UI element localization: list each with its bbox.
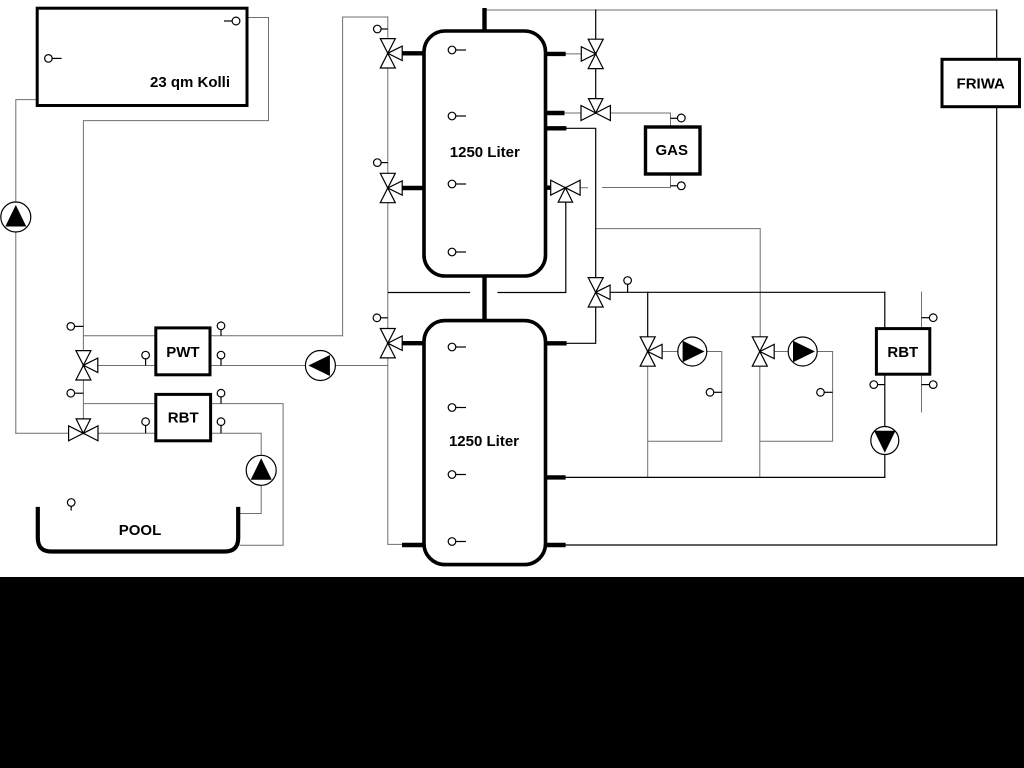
svg-text:RBT: RBT (887, 344, 918, 361)
svg-text:GAS: GAS (655, 142, 688, 159)
svg-text:FRIWA: FRIWA (957, 76, 1005, 93)
svg-text:RBT: RBT (168, 410, 199, 427)
svg-text:1250 Liter: 1250 Liter (449, 433, 519, 450)
svg-text:23 qm Kolli: 23 qm Kolli (150, 74, 230, 91)
svg-text:PWT: PWT (166, 344, 199, 361)
svg-text:1250 Liter: 1250 Liter (450, 144, 520, 161)
svg-text:POOL: POOL (119, 522, 162, 539)
